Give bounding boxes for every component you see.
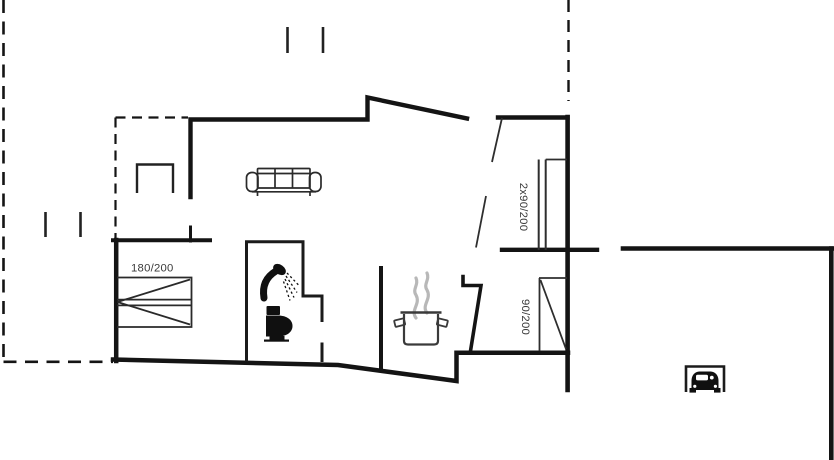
boundary-dashed-lines — [4, 0, 569, 362]
wall-lines — [113, 98, 833, 460]
bed-size-label: 180/200 — [131, 263, 174, 275]
table-icon — [137, 165, 173, 194]
shower-icon — [264, 262, 300, 301]
toilet-icon — [264, 306, 293, 342]
entrance-door-label: 2x90/200 — [517, 183, 529, 231]
car-carport-icon — [686, 367, 724, 393]
tick-marks — [46, 27, 324, 237]
floorplan-canvas: 2x90/200 90/200 180/200 — [0, 0, 834, 460]
interior-door — [539, 278, 567, 351]
sofa-icon — [247, 169, 322, 197]
cooking-pot-icon — [394, 313, 448, 345]
bathroom-walls — [247, 242, 323, 361]
interior-door-label: 90/200 — [519, 299, 531, 335]
double-bed-icon — [117, 278, 192, 328]
